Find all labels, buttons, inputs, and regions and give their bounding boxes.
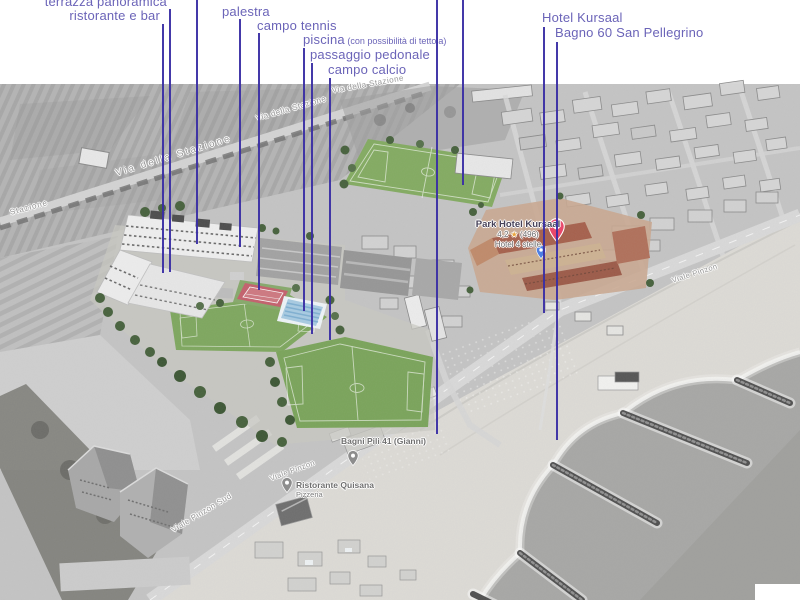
corner-box (755, 584, 800, 600)
site-plan-figure: Via della StazioneStazioneVia della Staz… (0, 0, 800, 600)
photo-grain (0, 84, 800, 600)
aerial-photo (0, 0, 800, 600)
